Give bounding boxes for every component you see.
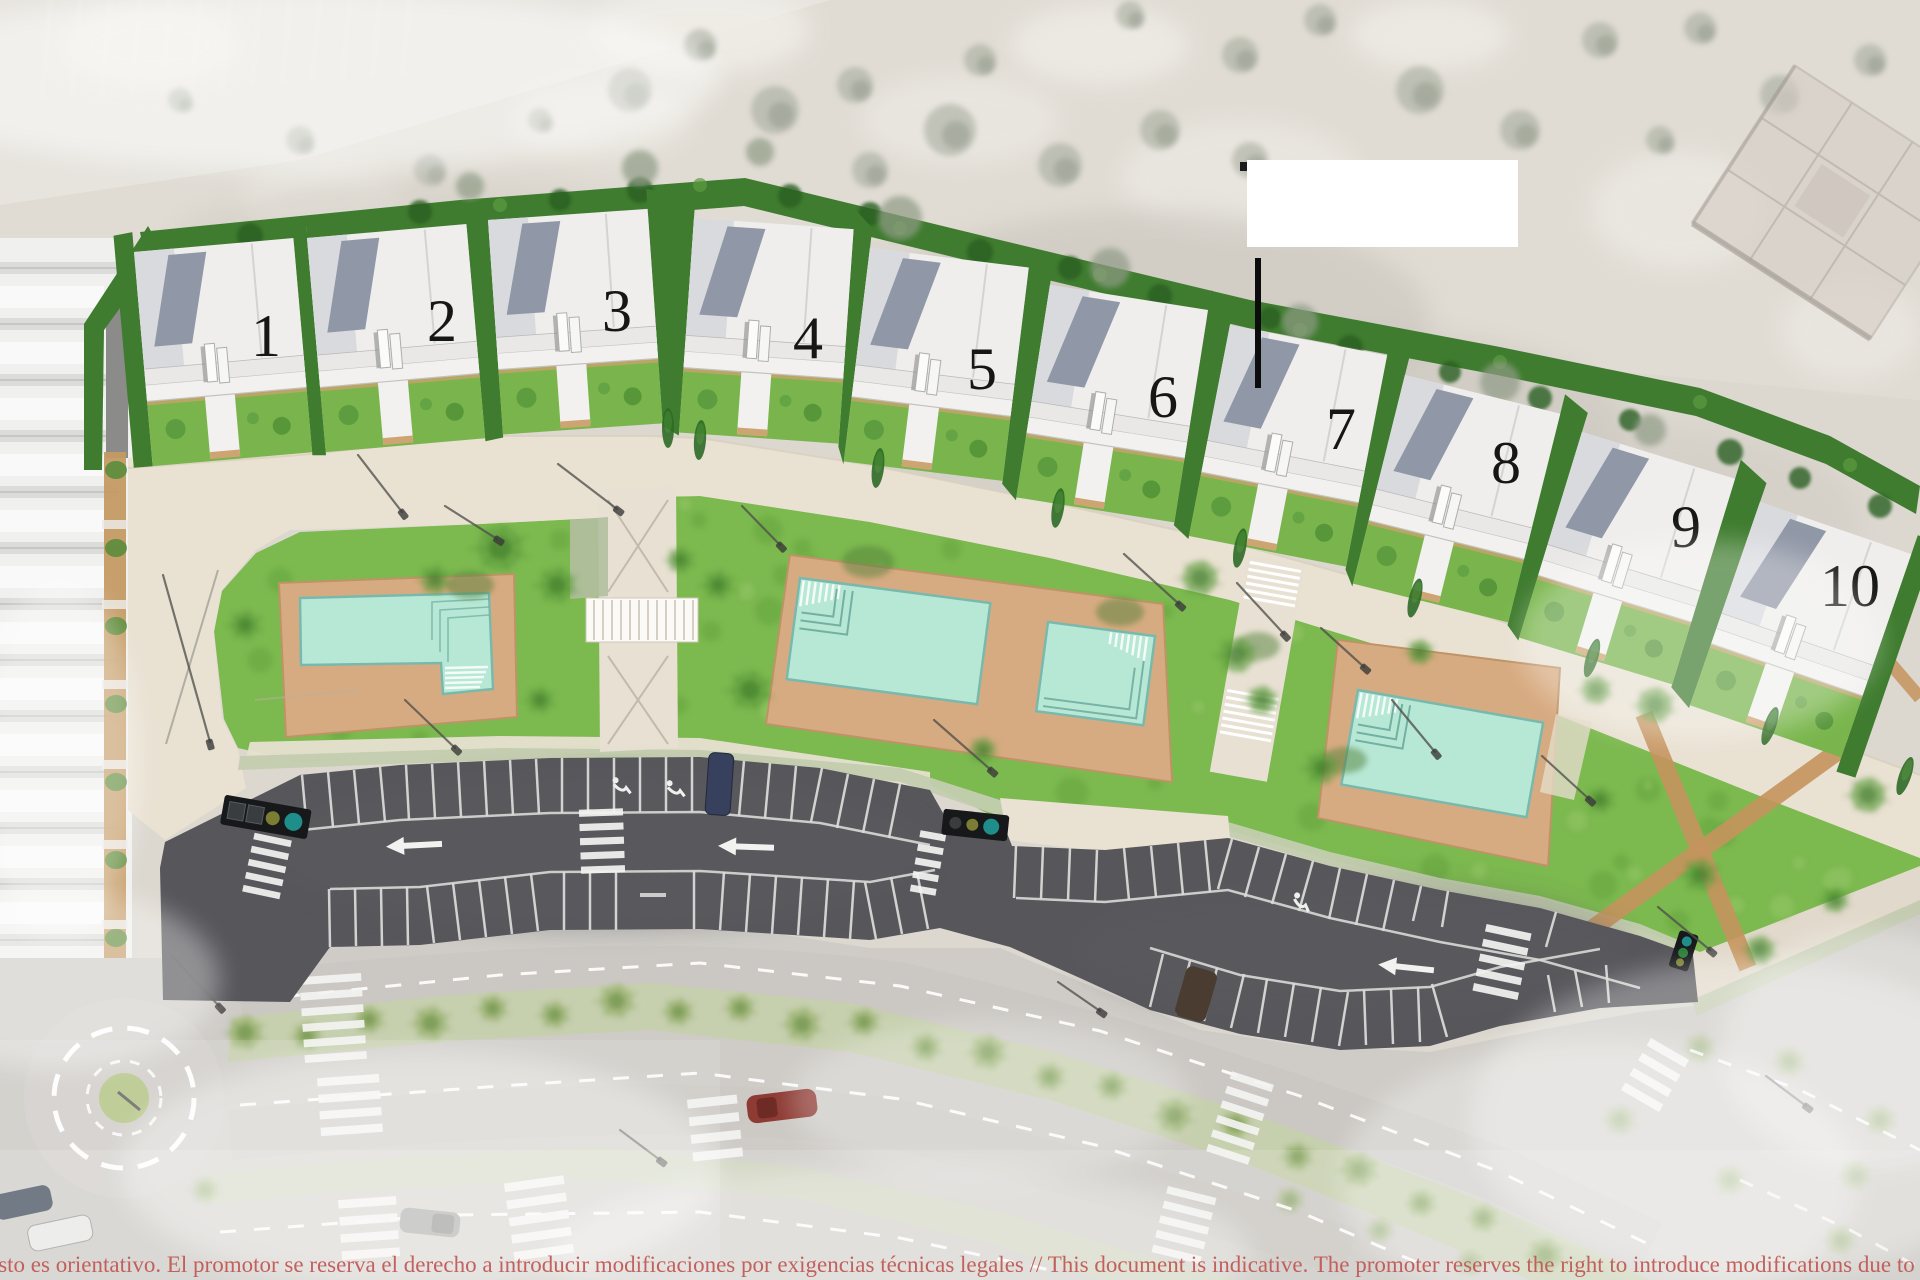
svg-text:7: 7 [1326,396,1356,462]
svg-text:8: 8 [1491,430,1521,496]
svg-text:6: 6 [1148,364,1178,430]
svg-text:2: 2 [427,288,457,354]
svg-text:1: 1 [251,303,281,369]
svg-text:esto es orientativo. El promot: esto es orientativo. El promotor se rese… [0,1252,1920,1277]
svg-text:5: 5 [967,336,997,402]
svg-text:3: 3 [602,278,632,344]
svg-text:4: 4 [793,305,823,371]
